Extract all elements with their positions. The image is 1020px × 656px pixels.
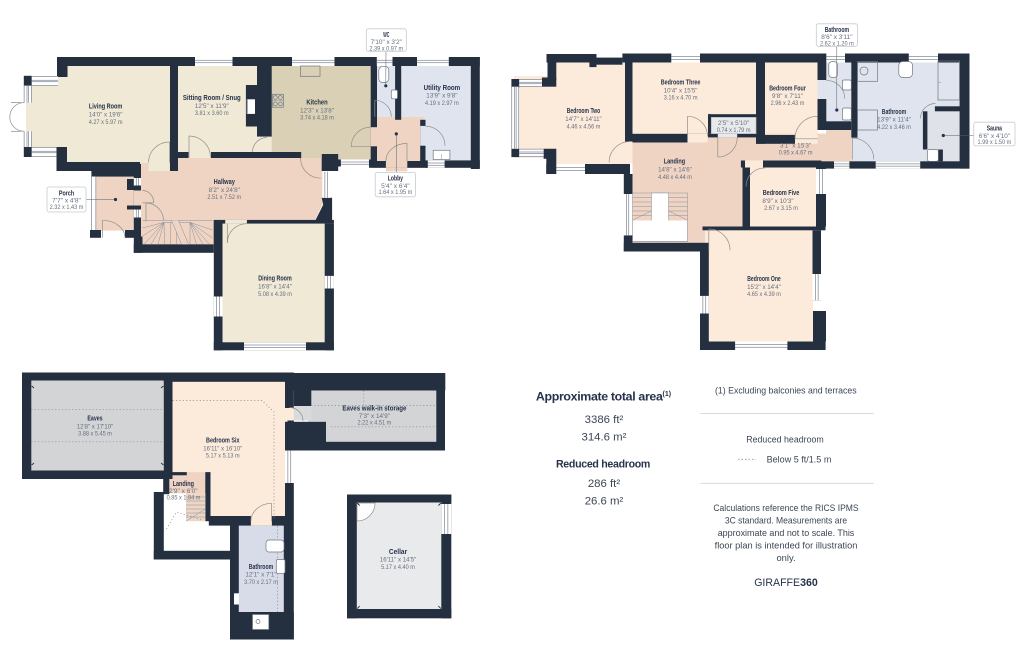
svg-text:5.17 x 4.40 m: 5.17 x 4.40 m [381,564,415,571]
svg-text:0.85 x 1.84 m: 0.85 x 1.84 m [167,495,201,502]
svg-text:Eaves walk-in storage: Eaves walk-in storage [342,405,406,412]
svg-text:Dining Room: Dining Room [258,276,292,283]
svg-text:Sauna: Sauna [987,126,1002,133]
svg-text:Bathroom: Bathroom [825,27,849,34]
svg-text:4.65 x 4.39 m: 4.65 x 4.39 m [747,291,781,298]
svg-text:(1) Excluding balconies and te: (1) Excluding balconies and terraces [715,385,857,396]
svg-text:2.32 x 1.43 m: 2.32 x 1.43 m [50,204,84,211]
svg-text:2.96 x 2.43 m: 2.96 x 2.43 m [771,100,805,107]
svg-text:Landing: Landing [664,159,685,166]
svg-text:Below 5 ft/1.5 m: Below 5 ft/1.5 m [767,454,832,465]
svg-text:approximate and not to scale.: approximate and not to scale. This [718,527,855,538]
svg-text:Bedroom Four: Bedroom Four [769,86,806,93]
svg-text:Eaves: Eaves [87,416,102,423]
svg-text:14'7" x 14'11": 14'7" x 14'11" [565,116,601,123]
svg-text:16'11" x 14'5": 16'11" x 14'5" [380,557,416,564]
svg-text:3.81 x 3.60 m: 3.81 x 3.60 m [195,110,229,117]
svg-text:Bedroom One: Bedroom One [747,276,781,283]
svg-text:12'3" x 13'8": 12'3" x 13'8" [300,107,334,114]
svg-text:4.48 x 4.44 m: 4.48 x 4.44 m [658,174,692,181]
svg-text:12'5" x 11'9": 12'5" x 11'9" [195,103,229,110]
svg-text:only.: only. [776,552,795,563]
svg-text:14'0" x 19'6": 14'0" x 19'6" [89,112,123,119]
svg-text:Cellar: Cellar [389,549,408,556]
svg-text:Lobby: Lobby [388,176,403,183]
svg-text:3C standard. Measurements are: 3C standard. Measurements are [725,515,847,526]
svg-text:10'4" x 15'5": 10'4" x 15'5" [664,87,698,94]
svg-text:floor plan is intended for ill: floor plan is intended for illustration [715,540,858,551]
svg-text:Reduced headroom: Reduced headroom [556,458,650,470]
svg-text:Bedroom Five: Bedroom Five [763,190,800,197]
svg-text:16'8" x 14'4": 16'8" x 14'4" [258,284,292,291]
svg-text:12'8" x 17'10": 12'8" x 17'10" [77,423,113,430]
svg-text:314.6 m²: 314.6 m² [582,432,627,444]
svg-text:15'2" x 14'4": 15'2" x 14'4" [747,284,781,291]
svg-text:2.22 x 4.51 m: 2.22 x 4.51 m [358,420,392,427]
svg-text:Reduced headroom: Reduced headroom [746,434,824,445]
svg-text:4.46 x 4.56 m: 4.46 x 4.56 m [567,123,601,130]
svg-text:26.6 m²: 26.6 m² [585,495,624,507]
svg-text:Utility Room: Utility Room [424,85,461,92]
svg-text:2.39 x 0.97 m: 2.39 x 0.97 m [369,45,403,52]
svg-text:Porch: Porch [59,190,74,197]
svg-text:3.74 x 4.18 m: 3.74 x 4.18 m [300,115,334,122]
svg-text:5.17 x 5.13 m: 5.17 x 5.13 m [206,453,240,460]
svg-text:Kitchen: Kitchen [306,99,327,106]
svg-text:1.99 x 1.50 m: 1.99 x 1.50 m [978,139,1012,146]
svg-text:0.74 x 1.79 m: 0.74 x 1.79 m [717,127,751,134]
svg-text:4.22 x 3.46 m: 4.22 x 3.46 m [877,124,911,131]
svg-text:Bedroom Three: Bedroom Three [661,80,701,87]
svg-text:3.88 x 5.45 m: 3.88 x 5.45 m [78,431,112,438]
svg-text:Bedroom Six: Bedroom Six [206,438,240,445]
svg-text:Landing: Landing [173,481,194,488]
svg-text:Bathroom: Bathroom [249,564,273,571]
svg-text:9'8" x 7'11": 9'8" x 7'11" [772,93,803,100]
svg-text:Bathroom: Bathroom [882,109,906,116]
svg-text:5.08 x 4.39 m: 5.08 x 4.39 m [258,291,292,298]
svg-text:2.67 x 3.15 m: 2.67 x 3.15 m [764,205,798,212]
svg-text:3.70 x 2.17 m: 3.70 x 2.17 m [244,579,278,586]
svg-text:0.95 x 4.67 m: 0.95 x 4.67 m [779,150,813,157]
svg-text:8'9" x 10'3": 8'9" x 10'3" [762,198,793,205]
svg-text:WC: WC [383,32,389,39]
svg-text:16'11" x 16'10": 16'11" x 16'10" [203,445,242,452]
svg-text:13'9" x 9'8": 13'9" x 9'8" [426,93,457,100]
svg-text:Living Room: Living Room [89,104,123,111]
svg-text:Bedroom Two: Bedroom Two [567,108,601,115]
svg-text:8'2" x 24'8": 8'2" x 24'8" [209,187,240,194]
svg-text:3.16 x 4.70 m: 3.16 x 4.70 m [664,95,698,102]
svg-text:12'1" x 7'1": 12'1" x 7'1" [245,572,276,579]
svg-text:2.51 x 7.52 m: 2.51 x 7.52 m [207,194,241,201]
svg-text:4.19 x 2.97 m: 4.19 x 2.97 m [425,100,459,107]
svg-text:Approximate total area(1): Approximate total area(1) [536,390,671,404]
svg-text:4.27 x 5.97 m: 4.27 x 5.97 m [89,119,123,126]
svg-text:Sitting Room / Snug: Sitting Room / Snug [183,95,241,102]
svg-text:1.64 x 1.95 m: 1.64 x 1.95 m [379,189,413,196]
svg-text:2.62 x 1.20 m: 2.62 x 1.20 m [820,40,854,47]
svg-text:Hallway: Hallway [214,179,235,186]
svg-text:Calculations reference the RIC: Calculations reference the RICS IPMS [713,502,858,513]
svg-text:13'9" x 11'4": 13'9" x 11'4" [877,117,911,124]
svg-text:14'8" x 14'6": 14'8" x 14'6" [658,166,692,173]
svg-text:3386 ft²: 3386 ft² [585,414,624,426]
svg-text:GIRAFFE360: GIRAFFE360 [754,577,818,589]
svg-text:286 ft²: 286 ft² [588,478,620,490]
